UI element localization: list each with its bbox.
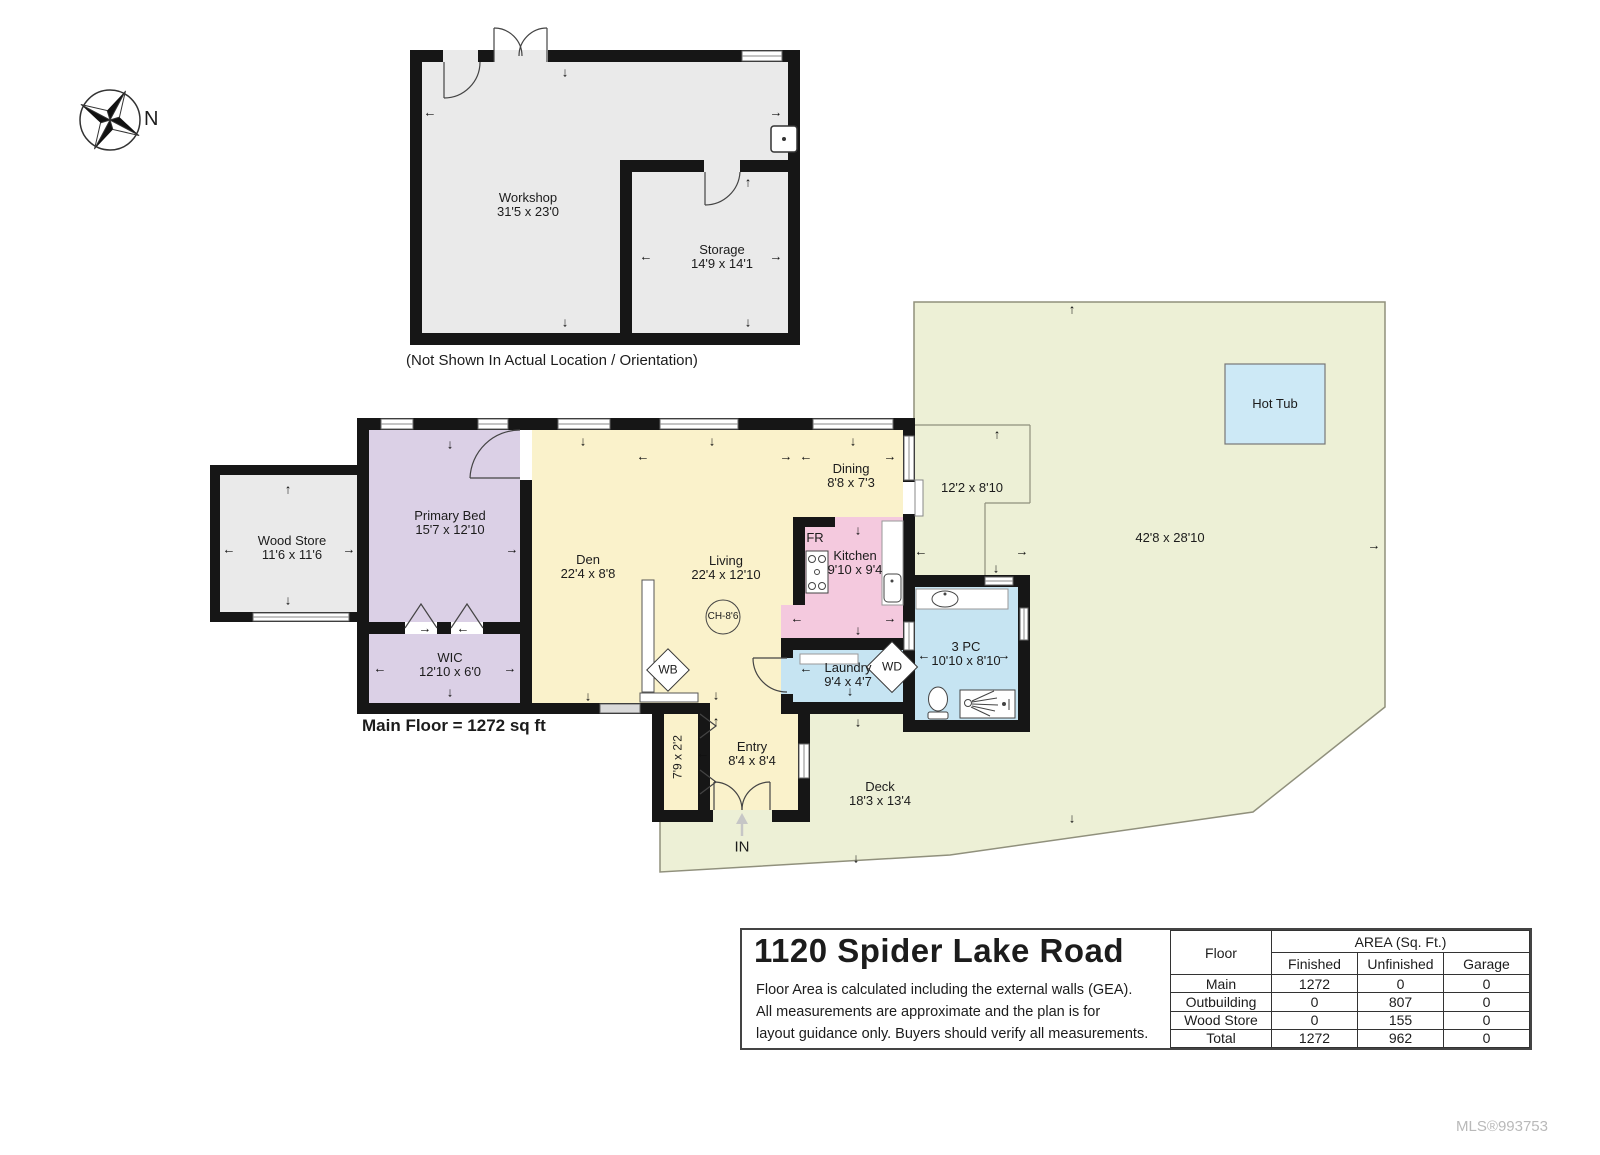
in-label: IN — [735, 839, 750, 858]
fridge-label: FR — [806, 530, 823, 546]
dim-arrow: ← — [640, 250, 653, 263]
wic-dims: 12'10 x 6'0 — [419, 664, 481, 680]
disclaimer: Floor Area is calculated including the e… — [756, 980, 1148, 1045]
dim-arrow: ↑ — [994, 428, 1001, 441]
cell-garage: 0 — [1444, 1011, 1530, 1029]
dim-arrow: → — [770, 250, 783, 263]
ceiling-height-label: CH-8'6 — [708, 611, 739, 624]
hot-tub-label: Hot Tub — [1252, 396, 1298, 412]
dim-arrow: → — [1016, 545, 1029, 558]
compass-icon — [65, 75, 154, 164]
dim-arrow: ← — [457, 622, 470, 635]
cell-floor: Total — [1171, 1029, 1272, 1047]
area-table-col: Unfinished — [1358, 953, 1444, 975]
dim-arrow: → — [884, 612, 897, 625]
deck-dims: 18'3 x 13'4 — [849, 793, 911, 809]
dim-arrow: ↓ — [447, 686, 454, 699]
cell-floor: Main — [1171, 975, 1272, 993]
dim-arrow: ↓ — [562, 66, 569, 79]
deck-large-dims: 42'8 x 28'10 — [1135, 530, 1204, 546]
outbuilding-note: (Not Shown In Actual Location / Orientat… — [406, 352, 698, 369]
shower-icon — [960, 690, 1015, 718]
info-panel: 1120 Spider Lake Road Floor Area is calc… — [740, 928, 1532, 1050]
cell-finished: 0 — [1272, 993, 1358, 1011]
mls-number: MLS®993753 — [1398, 1118, 1548, 1135]
dim-arrow: ← — [800, 662, 813, 675]
dim-arrow: ↓ — [447, 438, 454, 451]
stove-icon — [806, 551, 828, 593]
cell-floor: Wood Store — [1171, 1011, 1272, 1029]
bath-sink-icon — [916, 589, 1008, 609]
dim-arrow: ← — [223, 543, 236, 556]
dim-arrow: → — [1368, 539, 1381, 552]
dim-arrow: ↓ — [1069, 812, 1076, 825]
cell-finished: 0 — [1272, 1011, 1358, 1029]
disclaimer-line: All measurements are approximate and the… — [756, 1002, 1148, 1024]
bath-dims: 10'10 x 8'10 — [931, 653, 1000, 669]
dim-arrow: ↓ — [709, 435, 716, 448]
dim-arrow: ↓ — [993, 562, 1000, 575]
cell-finished: 1272 — [1272, 1029, 1358, 1047]
dim-arrow: ← — [374, 662, 387, 675]
dim-arrow: ↓ — [285, 594, 292, 607]
disclaimer-line: layout guidance only. Buyers should veri… — [756, 1024, 1148, 1046]
dim-arrow: ↑ — [285, 483, 292, 496]
disclaimer-line: Floor Area is calculated including the e… — [756, 980, 1148, 1002]
main-floor-total: Main Floor = 1272 sq ft — [362, 716, 546, 736]
dim-arrow: → — [884, 450, 897, 463]
cell-garage: 0 — [1444, 1029, 1530, 1047]
dim-arrow: ↓ — [847, 685, 854, 698]
dim-arrow: ← — [637, 450, 650, 463]
kitchen-dims: 9'10 x 9'4 — [828, 562, 883, 578]
property-title: 1120 Spider Lake Road — [754, 932, 1124, 970]
entry-dims: 8'4 x 8'4 — [728, 753, 776, 769]
dim-arrow: → — [419, 622, 432, 635]
cell-garage: 0 — [1444, 975, 1530, 993]
floor-plan-canvas: N Workshop 31'5 x 23'0 Storage 14'9 x 14… — [0, 0, 1600, 1155]
workshop-dims: 31'5 x 23'0 — [497, 204, 559, 220]
compass-n-label: N — [144, 108, 158, 131]
dim-arrow: → — [998, 649, 1011, 662]
cell-floor: Outbuilding — [1171, 993, 1272, 1011]
cell-unfinished: 0 — [1358, 975, 1444, 993]
dim-arrow: ↓ — [580, 435, 587, 448]
area-table: Floor AREA (Sq. Ft.) Finished Unfinished… — [1170, 930, 1530, 1048]
dim-arrow: ↓ — [855, 524, 862, 537]
area-table-row: Total 1272 962 0 — [1171, 1029, 1530, 1047]
cell-unfinished: 155 — [1358, 1011, 1444, 1029]
electrical-panel-icon — [771, 126, 797, 152]
dim-arrow: ↓ — [585, 690, 592, 703]
dim-arrow: ↓ — [745, 316, 752, 329]
dim-arrow: → — [780, 450, 793, 463]
cell-finished: 1272 — [1272, 975, 1358, 993]
cell-unfinished: 962 — [1358, 1029, 1444, 1047]
dim-arrow: ↓ — [853, 852, 860, 865]
area-table-row: Outbuilding 0 807 0 — [1171, 993, 1530, 1011]
entry-closet-dims: 7'9 x 2'2 — [671, 735, 686, 779]
area-table-col: Finished — [1272, 953, 1358, 975]
dim-arrow: ← — [915, 545, 928, 558]
primary-bed-dims: 15'7 x 12'10 — [415, 522, 484, 538]
cell-garage: 0 — [1444, 993, 1530, 1011]
den-dims: 22'4 x 8'8 — [561, 566, 616, 582]
dim-arrow: ↑ — [713, 715, 720, 728]
kitchen-sink-icon — [882, 521, 903, 605]
dim-arrow: ← — [697, 747, 710, 760]
living-dims: 22'4 x 12'10 — [691, 567, 760, 583]
dim-arrow: ← — [424, 106, 437, 119]
slider-opening — [903, 482, 915, 514]
dim-arrow: ↑ — [745, 176, 752, 189]
dim-arrow: ← — [791, 612, 804, 625]
storage-dims: 14'9 x 14'1 — [691, 256, 753, 272]
wood-burner-label: WB — [658, 663, 677, 678]
outbuilding-window — [742, 51, 782, 61]
wood-store-dims: 11'6 x 11'6 — [262, 547, 322, 563]
area-table-area-header: AREA (Sq. Ft.) — [1272, 931, 1530, 953]
outbuilding-rooms — [410, 50, 800, 345]
area-table-col: Garage — [1444, 953, 1530, 975]
dim-arrow: → — [770, 106, 783, 119]
area-table-floor-header: Floor — [1171, 931, 1272, 975]
area-table-row: Wood Store 0 155 0 — [1171, 1011, 1530, 1029]
cell-unfinished: 807 — [1358, 993, 1444, 1011]
dim-arrow: ↓ — [855, 624, 862, 637]
dim-arrow: → — [504, 662, 517, 675]
dim-arrow: ↓ — [562, 316, 569, 329]
dim-arrow: → — [343, 543, 356, 556]
dim-arrow: ↓ — [855, 716, 862, 729]
dim-arrow: → — [506, 543, 519, 556]
toilet-icon — [928, 687, 948, 719]
dim-arrow: ↑ — [1069, 303, 1076, 316]
dim-arrow: ← — [800, 450, 813, 463]
area-table-row: Main 1272 0 0 — [1171, 975, 1530, 993]
washer-dryer-label: WD — [882, 660, 902, 675]
deck-small-dims: 12'2 x 8'10 — [941, 480, 1003, 496]
dim-arrow: ← — [918, 649, 931, 662]
dim-arrow: ↓ — [850, 435, 857, 448]
dim-arrow: ↓ — [713, 689, 720, 702]
dining-dims: 8'8 x 7'3 — [827, 475, 875, 491]
